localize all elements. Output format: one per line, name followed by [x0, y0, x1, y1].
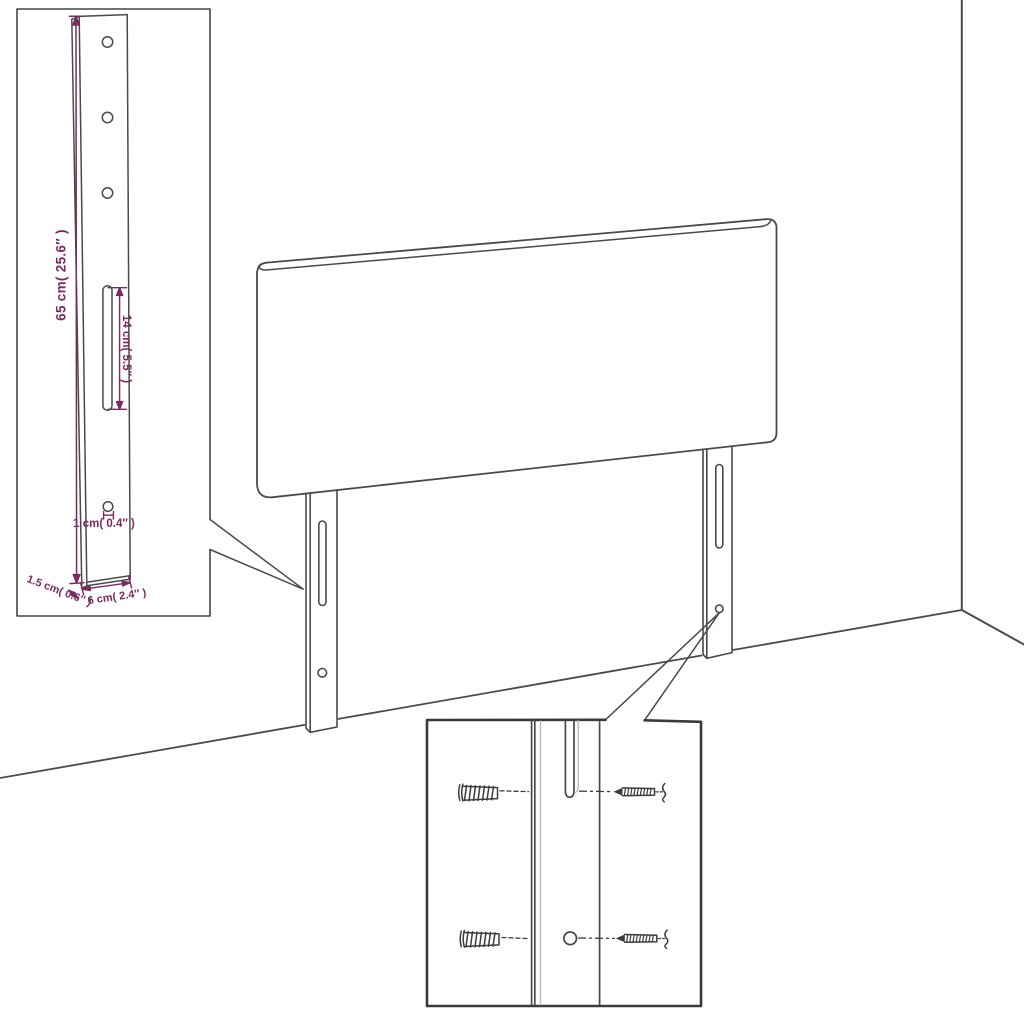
callout-wedge-right	[606, 613, 720, 721]
callout-wedges	[210, 520, 719, 721]
diagram-canvas	[0, 0, 1024, 1024]
headboard-right-leg	[703, 445, 732, 658]
hardware-detail-box	[427, 720, 701, 1006]
diagram-stage: 65 cm( 25.6″ ) 14 cm( 5.5″ ) 1 cm( 0.4″ …	[0, 0, 1024, 1024]
plug-upper-dash	[500, 791, 529, 792]
callout-wedge-left	[210, 520, 303, 590]
headboard-panel	[257, 219, 777, 497]
dimension-label-hole-diameter: 1 cm( 0.4″ )	[73, 518, 135, 530]
headboard-left-leg	[306, 488, 337, 732]
panel-outline	[257, 219, 777, 497]
floor-edge-right	[962, 610, 1024, 645]
dimension-label-slot-length: 14 cm( 5.5″ )	[120, 315, 132, 383]
dimension-label-bracket-height: 65 cm( 25.6″ )	[54, 229, 69, 321]
